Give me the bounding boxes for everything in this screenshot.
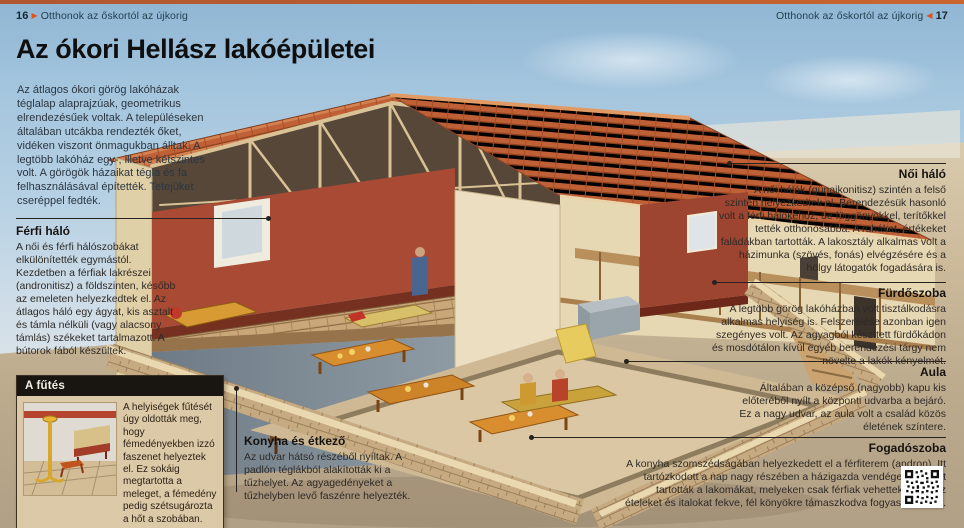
- annotation-heading: Fürdőszoba: [706, 286, 946, 300]
- leader-line-fogadoszoba: [531, 437, 946, 438]
- annotation-heading: Aula: [736, 365, 946, 379]
- annotation-heading: Konyha és étkező: [244, 434, 436, 448]
- leader-line-furdoszoba: [714, 282, 946, 283]
- qr-code: [901, 466, 943, 508]
- intro-paragraph: Az átlagos ókori görög lakóházak téglala…: [17, 84, 205, 209]
- leader-line-konyha: [236, 390, 237, 492]
- annotation-body: A legtöbb görög lakóházban volt tisztálk…: [706, 303, 946, 368]
- annotation-body: A női és férfi hálószobákat elkülönített…: [16, 241, 176, 358]
- annotation-aula: Aula Általában a középső (nagyobb) kapu …: [736, 365, 946, 434]
- annotation-body: A női hálók (günaikonitisz) szintén a fe…: [718, 184, 946, 275]
- annotation-noi-halo: Női háló A női hálók (günaikonitisz) szi…: [718, 167, 946, 275]
- sidebar-box-body: A helyiségek fűtését úgy oldották meg, h…: [123, 402, 217, 526]
- annotation-heading: Férfi háló: [16, 224, 176, 238]
- annotation-ferfi-halo: Férfi háló A női és férfi hálószobákat e…: [16, 224, 176, 358]
- annotation-body: A konyha szomszédságában helyezkedett el…: [624, 458, 946, 510]
- annotation-heading: Női háló: [718, 167, 946, 181]
- annotation-konyha: Konyha és étkező Az udvar hátsó részéből…: [244, 434, 436, 503]
- annotation-heading: Fogadószoba: [624, 441, 946, 455]
- leader-line-ferfi-halo: [16, 218, 268, 219]
- annotation-furdoszoba: Fürdőszoba A legtöbb görög lakóházban vo…: [706, 286, 946, 368]
- page-spread: 16▶Otthonok az őskortól az újkorig Ottho…: [0, 0, 964, 528]
- leader-dot-furdoszoba: [712, 280, 717, 285]
- leader-dot-fogadoszoba: [529, 435, 534, 440]
- annotation-body: Általában a középső (nagyobb) kapu kis e…: [736, 382, 946, 434]
- sidebar-box-heading: A fűtés: [17, 376, 223, 396]
- sidebar-box-futes: A fűtés A helyiségek fűtését úgy old: [16, 375, 224, 528]
- annotation-fogadoszoba: Fogadószoba A konyha szomszédságában hel…: [624, 441, 946, 510]
- annotation-body: Az udvar hátsó részéből nyíltak. A padló…: [244, 451, 436, 503]
- page-title: Az ókori Hellász lakóépületei: [16, 34, 375, 65]
- heating-illustration: [23, 402, 117, 496]
- leader-dot-ferfi-halo: [266, 216, 271, 221]
- leader-line-noi-halo: [729, 163, 946, 164]
- leader-dot-konyha: [234, 386, 239, 391]
- leader-dot-aula: [624, 359, 629, 364]
- leader-dot-noi-halo: [727, 161, 732, 166]
